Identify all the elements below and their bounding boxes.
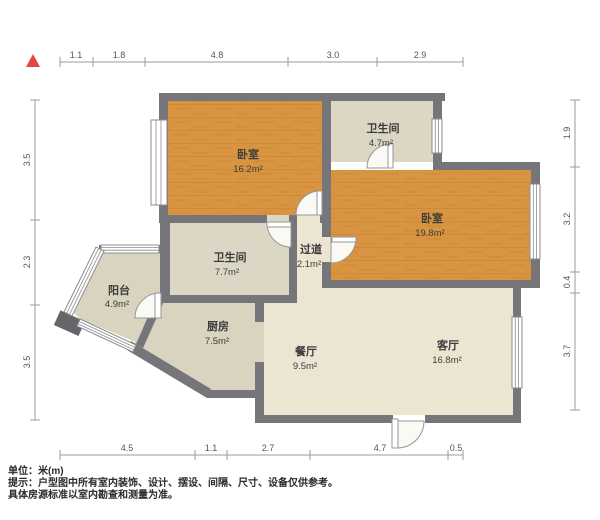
dim-bottom-3: 2.7 xyxy=(262,443,275,453)
room-label-bedroom-1: 卧室 xyxy=(237,147,259,161)
dim-bottom-5: 0.5 xyxy=(450,443,463,453)
dim-bottom-1: 4.5 xyxy=(121,443,134,453)
floorplan-page: { "rooms": [ {"id":"bedroom-1","name":"卧… xyxy=(0,0,600,520)
dim-left-3: 3.5 xyxy=(22,356,32,369)
dim-top-3: 4.8 xyxy=(211,50,224,60)
floorplan-canvas: 卧室 16.2m² 卫生间 4.7m² 卧室 19.8m² 卫生间 7.7m² … xyxy=(0,0,600,520)
dim-top-5: 2.9 xyxy=(414,50,427,60)
room-label-dining: 餐厅 xyxy=(294,344,317,358)
opening-gap-floor xyxy=(255,322,264,362)
dim-bottom-2: 1.1 xyxy=(205,443,218,453)
dim-right-3: 0.4 xyxy=(562,276,572,289)
dimension-right: 1.9 3.2 0.4 3.7 xyxy=(562,100,580,410)
room-floor-bedroom-2 xyxy=(331,170,531,280)
room-label-bedroom-2: 卧室 xyxy=(421,211,443,225)
room-label-bathroom-mid: 卫生间 xyxy=(214,250,247,264)
room-area-bedroom-1: 16.2m² xyxy=(233,164,263,175)
room-label-kitchen: 厨房 xyxy=(207,319,229,333)
disclaimer-line-1: 提示：户型图中所有室内装饰、设计、摆设、间隔、尺寸、设备仅供参考。 xyxy=(8,478,568,490)
room-area-dining: 9.5m² xyxy=(293,361,317,372)
door-entrance xyxy=(392,419,424,448)
window-bedroom-1-left xyxy=(151,120,167,205)
footer-notes: 单位：米(m) 提示：户型图中所有室内装饰、设计、摆设、间隔、尺寸、设备仅供参考… xyxy=(8,466,568,502)
dim-top-2: 1.8 xyxy=(113,50,126,60)
room-label-bathroom-top: 卫生间 xyxy=(367,121,400,135)
dim-left-1: 3.5 xyxy=(22,154,32,167)
dimension-left: 3.5 2.3 3.5 xyxy=(22,100,40,420)
dim-right-4: 3.7 xyxy=(562,345,572,358)
dim-right-1: 1.9 xyxy=(562,127,572,140)
room-label-living: 客厅 xyxy=(436,338,459,352)
unit-label: 单位：米(m) xyxy=(8,466,568,478)
window-bathroom-top-right xyxy=(432,119,442,153)
disclaimer-line-2: 具体房源标准以室内勘查和测量为准。 xyxy=(8,490,568,502)
dim-left-2: 2.3 xyxy=(22,256,32,269)
room-label-balcony: 阳台 xyxy=(108,283,130,297)
door-gap-floor xyxy=(297,215,320,223)
room-area-living: 16.8m² xyxy=(432,355,462,366)
window-balcony-top xyxy=(101,245,159,253)
room-area-bathroom-top: 4.7m² xyxy=(369,138,393,149)
room-label-hallway: 过道 xyxy=(300,242,322,256)
room-area-kitchen: 7.5m² xyxy=(205,336,229,347)
north-arrow-icon xyxy=(26,54,40,67)
dimension-top: 1.1 1.8 4.8 3.0 2.9 xyxy=(60,50,463,67)
dim-top-1: 1.1 xyxy=(70,50,83,60)
dim-right-2: 3.2 xyxy=(562,213,572,226)
door-gap-floor xyxy=(322,237,331,262)
room-area-balcony: 4.9m² xyxy=(105,299,129,310)
room-area-hallway: 2.1m² xyxy=(297,259,321,270)
window-living-right xyxy=(512,317,522,388)
window-bedroom-2-right xyxy=(530,184,540,259)
dim-bottom-4: 4.7 xyxy=(374,443,387,453)
room-area-bathroom-mid: 7.7m² xyxy=(215,267,239,278)
room-area-bedroom-2: 19.8m² xyxy=(415,228,445,239)
dim-top-4: 3.0 xyxy=(327,50,340,60)
